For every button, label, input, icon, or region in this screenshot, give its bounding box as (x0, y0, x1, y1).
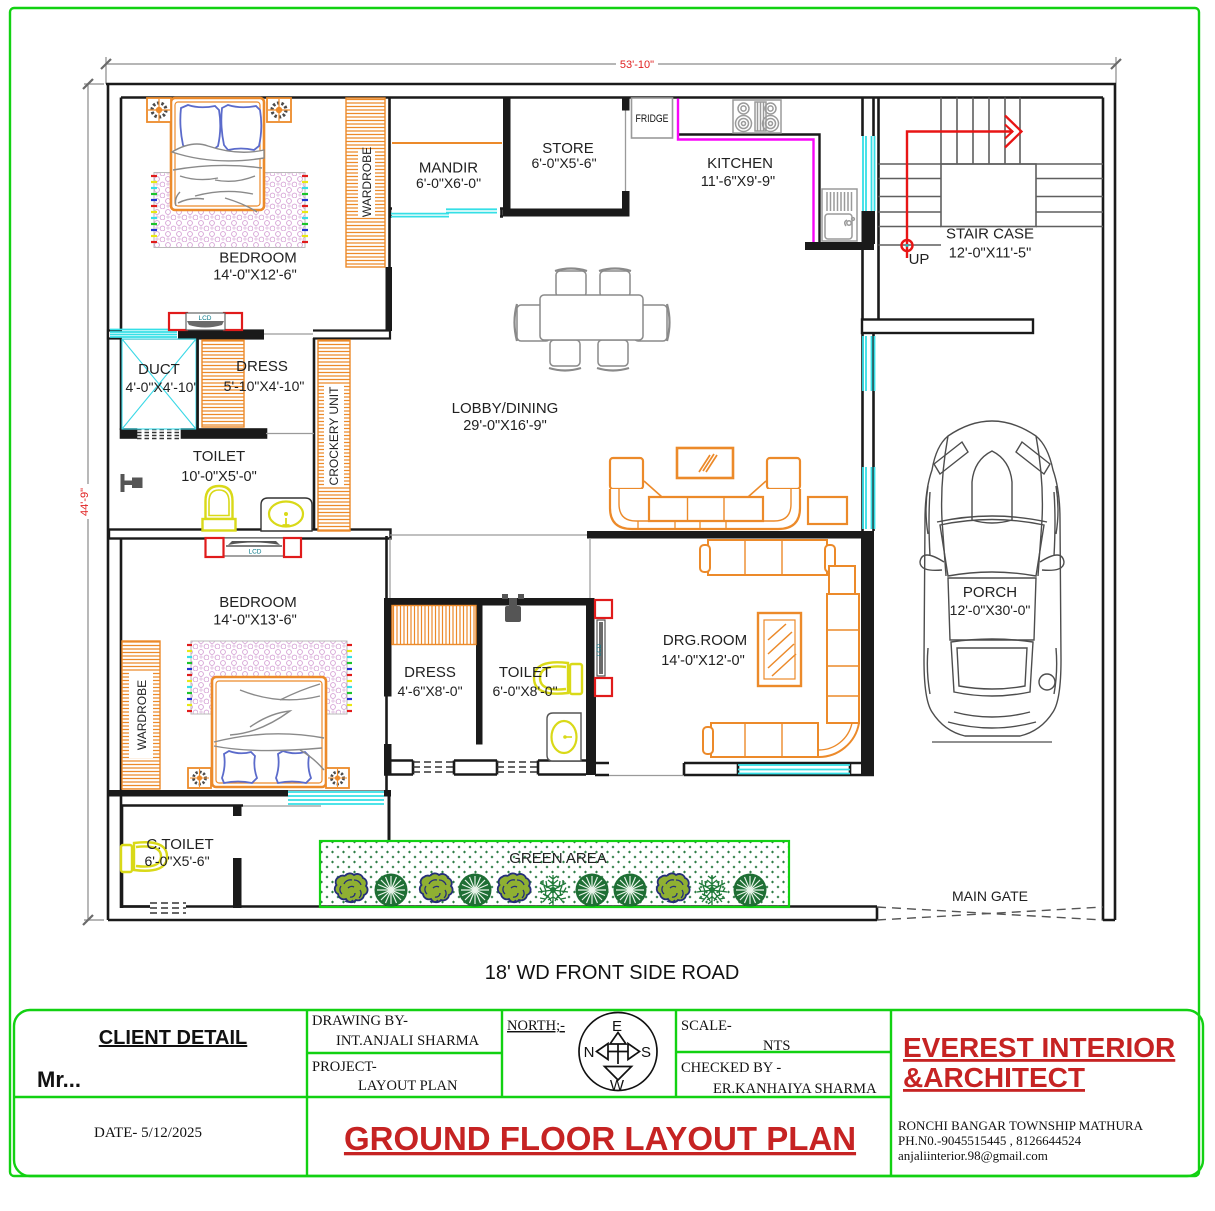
svg-text:WARDROBE: WARDROBE (360, 147, 374, 217)
svg-text:TOILET: TOILET (193, 448, 245, 465)
svg-text:PROJECT-: PROJECT- (312, 1059, 377, 1075)
svg-text:RONCHI BANGAR TOWNSHIP MATHURA: RONCHI BANGAR TOWNSHIP MATHURA (898, 1118, 1144, 1133)
svg-text:DRESS: DRESS (236, 358, 288, 375)
svg-text:Mr...: Mr... (37, 1067, 81, 1092)
svg-text:anjaliinterior.98@gmail.com: anjaliinterior.98@gmail.com (898, 1148, 1048, 1163)
svg-text:6'-0"X5'-6": 6'-0"X5'-6" (144, 853, 209, 869)
svg-text:FRIDGE: FRIDGE (636, 113, 669, 125)
svg-text:BEDROOM: BEDROOM (219, 250, 297, 267)
svg-text:14'-0"X12'-6": 14'-0"X12'-6" (213, 268, 297, 284)
svg-text:BEDROOM: BEDROOM (219, 594, 297, 611)
svg-text:44'-9": 44'-9" (79, 488, 91, 516)
svg-text:LOBBY/DINING: LOBBY/DINING (452, 400, 559, 417)
svg-text:DRG.ROOM: DRG.ROOM (663, 632, 747, 649)
svg-text:DUCT: DUCT (138, 361, 180, 378)
svg-text:PH.N0.-9045515445 , 8126644524: PH.N0.-9045515445 , 8126644524 (898, 1133, 1082, 1148)
svg-text:E: E (612, 1018, 622, 1035)
svg-text:12'-0"X30'-0": 12'-0"X30'-0" (950, 602, 1031, 618)
svg-text:6'-0"X5'-6": 6'-0"X5'-6" (531, 155, 596, 171)
svg-text:TOILET: TOILET (499, 664, 551, 681)
svg-text:LCD: LCD (248, 549, 261, 556)
svg-text:LCD: LCD (597, 643, 603, 656)
svg-text:STAIR CASE: STAIR CASE (946, 226, 1034, 243)
svg-text:53'-10": 53'-10" (620, 59, 654, 71)
svg-text:MANDIR: MANDIR (419, 160, 478, 177)
svg-text:6'-0"X8'-0": 6'-0"X8'-0" (492, 683, 557, 699)
svg-text:GROUND FLOOR LAYOUT PLAN: GROUND FLOOR LAYOUT PLAN (344, 1120, 856, 1157)
svg-text:CHECKED BY -: CHECKED BY - (681, 1060, 781, 1076)
svg-text:S: S (641, 1044, 651, 1061)
svg-text:4'-6"X8'-0": 4'-6"X8'-0" (397, 683, 462, 699)
svg-text:10'-0"X5'-0": 10'-0"X5'-0" (181, 469, 256, 485)
svg-text:4'-0"X4'-10": 4'-0"X4'-10" (126, 379, 199, 395)
svg-text:CROCKERY UNIT: CROCKERY UNIT (327, 386, 341, 486)
svg-text:DATE- 5/12/2025: DATE- 5/12/2025 (94, 1125, 202, 1141)
svg-text:6'-0"X6'-0": 6'-0"X6'-0" (416, 175, 481, 191)
svg-text:NORTH;-: NORTH;- (507, 1018, 565, 1034)
svg-text:PORCH: PORCH (963, 584, 1017, 601)
svg-text:DRAWING BY-: DRAWING BY- (312, 1013, 408, 1029)
svg-text:12'-0"X11'-5": 12'-0"X11'-5" (949, 246, 1031, 262)
svg-text:&ARCHITECT: &ARCHITECT (903, 1062, 1085, 1093)
svg-text:14'-0"X12'-0": 14'-0"X12'-0" (661, 653, 745, 669)
svg-text:MAIN GATE: MAIN GATE (952, 888, 1028, 904)
svg-text:INT.ANJALI SHARMA: INT.ANJALI SHARMA (336, 1033, 480, 1049)
svg-text:14'-0"X13'-6": 14'-0"X13'-6" (213, 613, 297, 629)
svg-text:WARDROBE: WARDROBE (135, 680, 149, 750)
svg-text:11'-6"X9'-9": 11'-6"X9'-9" (701, 174, 775, 190)
svg-text:DRESS: DRESS (404, 664, 456, 681)
svg-text:UP: UP (909, 251, 930, 268)
svg-text:EVEREST INTERIOR: EVEREST INTERIOR (903, 1032, 1175, 1063)
svg-text:N: N (584, 1044, 595, 1061)
svg-text:SCALE-: SCALE- (681, 1018, 732, 1034)
svg-text:C.TOILET: C.TOILET (146, 836, 213, 853)
svg-text:KITCHEN: KITCHEN (707, 155, 773, 172)
svg-text:LCD: LCD (198, 315, 211, 322)
svg-text:W: W (610, 1077, 625, 1094)
svg-text:NTS: NTS (763, 1038, 790, 1054)
svg-text:29'-0"X16'-9": 29'-0"X16'-9" (463, 418, 547, 434)
svg-text:CLIENT DETAIL: CLIENT DETAIL (99, 1027, 248, 1049)
svg-text:18' WD FRONT SIDE ROAD: 18' WD FRONT SIDE ROAD (485, 962, 740, 984)
svg-text:LAYOUT PLAN: LAYOUT PLAN (358, 1078, 458, 1094)
svg-text:5'-10"X4'-10": 5'-10"X4'-10" (224, 378, 305, 394)
svg-text:ER.KANHAIYA SHARMA: ER.KANHAIYA SHARMA (713, 1081, 877, 1097)
svg-text:GREEN AREA: GREEN AREA (509, 850, 607, 867)
